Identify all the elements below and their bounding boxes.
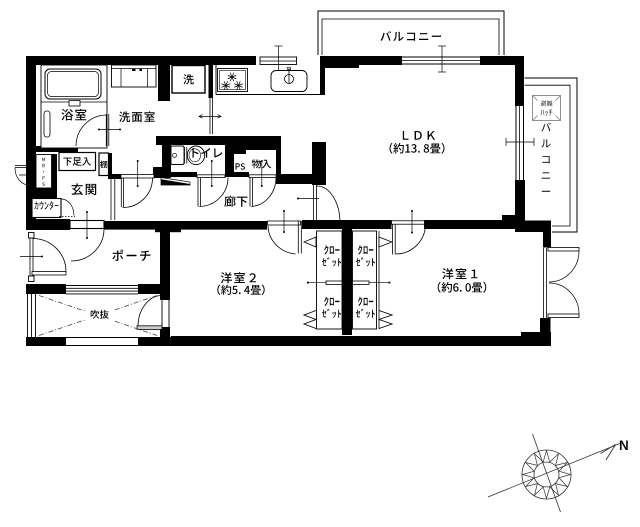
svg-text:N: N bbox=[619, 438, 629, 453]
